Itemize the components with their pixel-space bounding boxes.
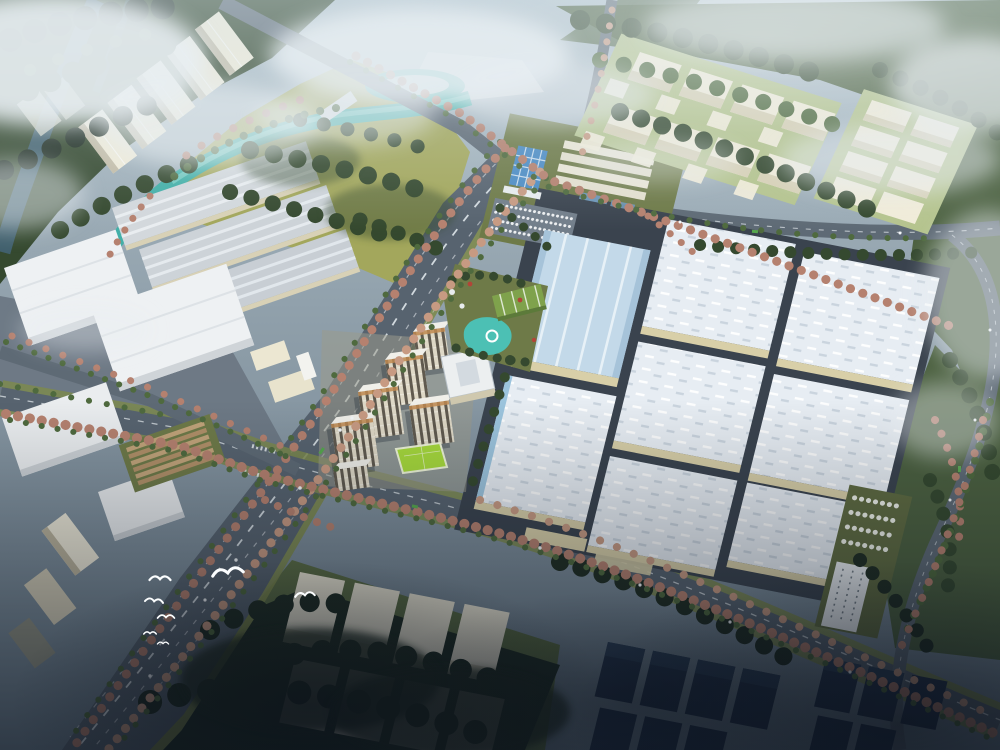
red-accent [468, 282, 473, 287]
rendering-stage [0, 0, 1000, 750]
pavilion [449, 289, 455, 295]
aerial-render [0, 0, 1000, 750]
